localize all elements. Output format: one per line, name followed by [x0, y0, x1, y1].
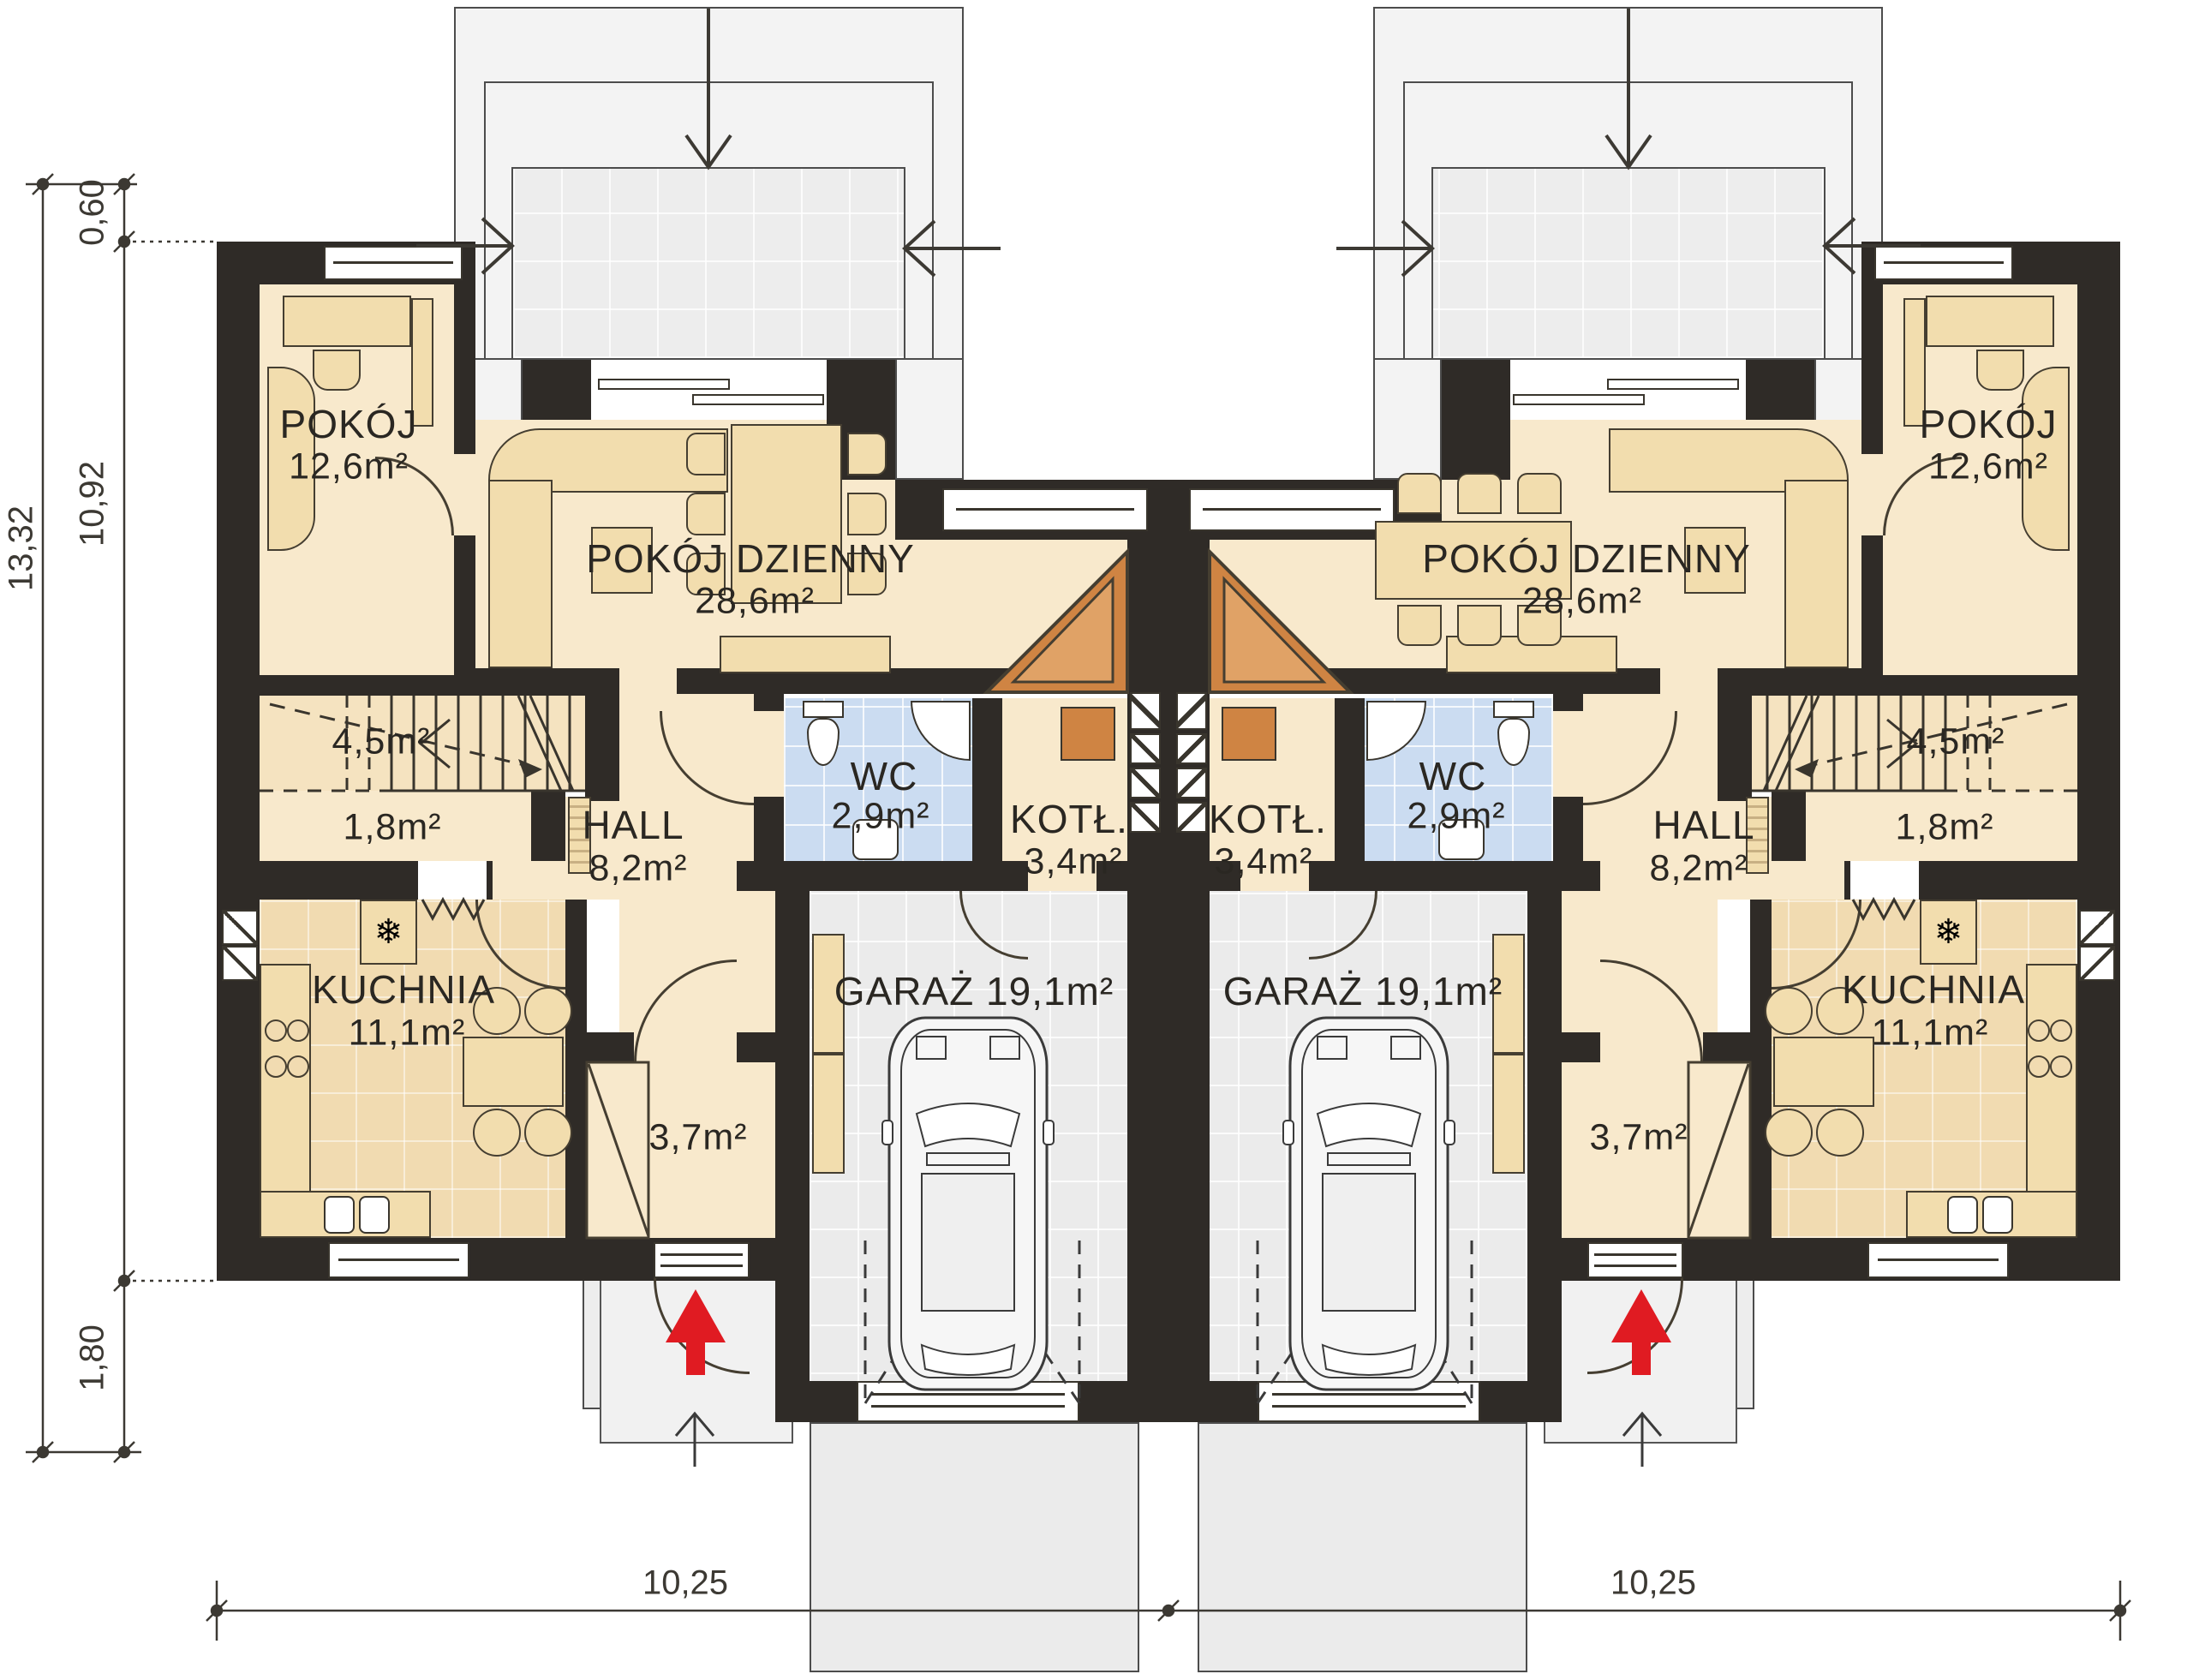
room-area-closet: 1,8m²	[1896, 807, 1994, 849]
floor-plan: ❄	[0, 0, 2193, 1680]
room-label-pokoj: POKÓJ	[1920, 401, 2058, 447]
room-label-pokoj: POKÓJ	[280, 401, 418, 447]
dim-label-width-left: 10,25	[642, 1564, 728, 1603]
wardrobe-diagonal	[1688, 1064, 1748, 1236]
hatch-zigzag	[422, 900, 484, 918]
porch-step-arrow	[676, 1414, 714, 1467]
room-label-boiler: KOTŁ.	[1209, 796, 1327, 842]
fireplace	[987, 552, 1127, 692]
fireplace	[1210, 552, 1350, 692]
room-label-kitchen: KUCHNIA	[1842, 966, 2025, 1013]
room-area-stairs: 4,5m²	[332, 721, 431, 763]
room-label-garage: GARAŻ 19,1m²	[834, 968, 1114, 1014]
terrace-arrow-left	[1336, 221, 1432, 276]
room-area-kitchen: 11,1m²	[1872, 1013, 1989, 1055]
room-label-wc: WC	[851, 753, 918, 799]
room-area-hall: 8,2m²	[589, 848, 688, 890]
terrace-arrow-right	[416, 218, 512, 273]
room-area-wardrobe: 3,7m²	[1590, 1117, 1688, 1159]
room-area-kitchen: 11,1m²	[349, 1013, 466, 1055]
room-area-pokoj: 12,6m²	[1928, 446, 2048, 488]
room-label-hall: HALL	[582, 802, 684, 848]
porch-step-arrow	[1623, 1414, 1661, 1467]
dim-label-terrace-offset: 0,60	[74, 179, 112, 246]
room-area-boiler: 3,4m²	[1025, 841, 1123, 883]
dim-label-width-right: 10,25	[1610, 1564, 1696, 1603]
terrace-arrow-right	[1825, 218, 1921, 273]
room-label-garage: GARAŻ 19,1m²	[1223, 968, 1503, 1014]
room-area-wc: 2,9m²	[832, 796, 930, 838]
room-label-living: POKÓJ DZIENNY	[1422, 535, 1751, 582]
room-label-hall: HALL	[1652, 802, 1754, 848]
room-label-boiler: KOTŁ.	[1010, 796, 1128, 842]
room-label-kitchen: KUCHNIA	[312, 966, 495, 1013]
room-area-stairs: 4,5m²	[1907, 721, 2005, 763]
room-area-boiler: 3,4m²	[1215, 841, 1313, 883]
room-area-pokoj: 12,6m²	[289, 446, 409, 488]
room-area-wc: 2,9m²	[1407, 796, 1506, 838]
car	[1283, 1018, 1455, 1390]
wardrobe-diagonal	[589, 1064, 648, 1236]
room-label-wc: WC	[1419, 753, 1487, 799]
room-area-living: 28,6m²	[1522, 581, 1642, 623]
hatch-zigzag	[1853, 900, 1915, 918]
terrace-arrow-left	[905, 221, 1001, 276]
terrace-arrow-down	[686, 9, 731, 167]
dim-label-porch-depth: 1,80	[74, 1324, 112, 1391]
room-area-living: 28,6m²	[695, 581, 815, 623]
car	[882, 1018, 1054, 1390]
room-label-living: POKÓJ DZIENNY	[586, 535, 915, 582]
room-area-hall: 8,2m²	[1650, 848, 1748, 890]
terrace-arrow-down	[1606, 9, 1651, 167]
room-area-closet: 1,8m²	[344, 807, 442, 849]
unit-left: ❄	[217, 0, 1168, 1680]
dim-label-main-height: 10,92	[74, 461, 112, 547]
unit-right: ❄	[1168, 0, 2120, 1680]
room-area-wardrobe: 3,7m²	[649, 1117, 748, 1159]
dim-label-total-height: 13,32	[3, 505, 41, 591]
